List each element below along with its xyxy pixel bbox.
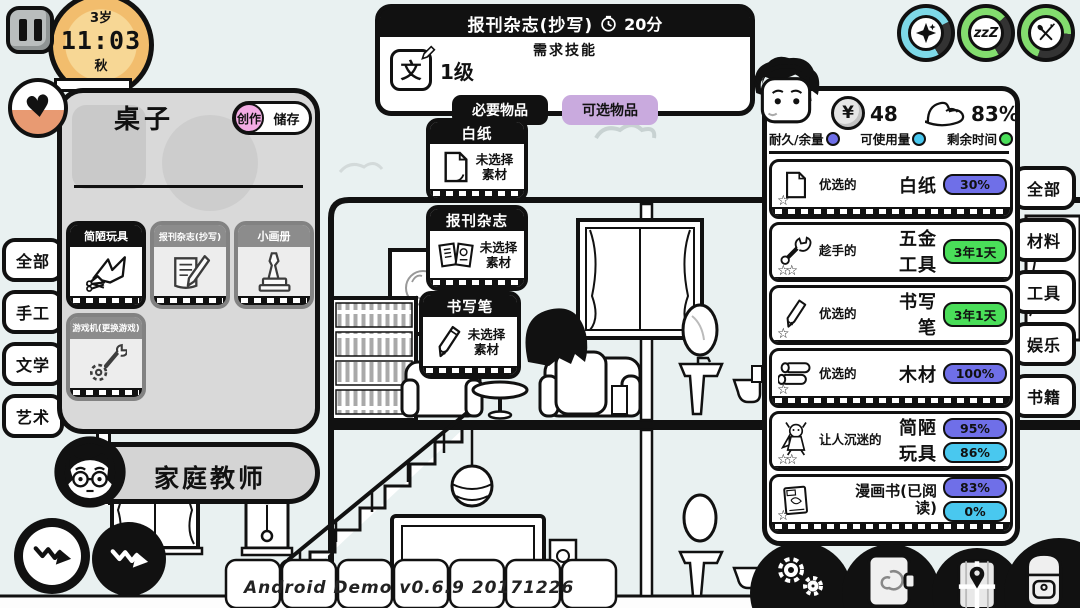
tab-label: 艺术: [16, 404, 50, 428]
item-quality: 优选的: [819, 307, 887, 321]
film-strip: [772, 522, 1010, 531]
statue-icon: [254, 250, 294, 294]
slot-name: 报刊杂志: [430, 209, 524, 231]
item-name: 简陋玩具: [889, 414, 939, 466]
wood-logs-icon: ☆: [775, 351, 817, 396]
usable-dot: [912, 132, 926, 146]
tab-label: 材料: [1027, 228, 1061, 252]
tab-label: 全部: [16, 248, 50, 272]
sparkle-icon: [915, 22, 937, 44]
mood-heart-gauge[interactable]: ♥: [8, 78, 68, 138]
tutor-face-icon: [52, 434, 128, 510]
material-slot-pen[interactable]: 书写笔 未选择 素材: [419, 291, 521, 379]
recipe-name: 报刊杂志(抄写): [154, 225, 226, 247]
item-name: 木材: [889, 361, 939, 387]
backpack-icon: [1011, 544, 1077, 608]
film-strip: [70, 388, 142, 397]
inv-tab-all[interactable]: 全部: [1012, 166, 1076, 210]
age-label: 3岁: [53, 7, 149, 26]
origami-crane-icon: [83, 251, 129, 293]
durability-badge: 100%: [943, 363, 1007, 384]
item-row-tools[interactable]: ☆☆ 趁手的 五金工具 3年1天: [769, 222, 1013, 282]
craft-tab-literature[interactable]: 文学: [2, 342, 64, 386]
item-row-crude-toy[interactable]: ☆☆ 让人沉迷的 简陋玩具 95% 86%: [769, 411, 1013, 471]
item-row-wood[interactable]: ☆ 优选的 木材 100%: [769, 348, 1013, 408]
inv-tab-materials[interactable]: 材料: [1012, 218, 1076, 262]
craft-tab-all[interactable]: 全部: [2, 238, 64, 282]
slot-status: 未选择 素材: [480, 240, 518, 270]
tutor-avatar: [52, 434, 128, 510]
recipe-card-picture-album[interactable]: 小画册: [234, 221, 314, 309]
recipe-card-crude-toy[interactable]: 简陋玩具: [66, 221, 146, 309]
item-quality: 优选的: [819, 367, 887, 381]
film-strip: [772, 466, 1010, 471]
comic-book-icon: ☆: [775, 477, 817, 522]
sleep-gauge[interactable]: zzZ: [957, 4, 1015, 62]
pencil-icon: [420, 45, 436, 61]
skill-char: 文: [401, 55, 422, 85]
tab-label: 全部: [1027, 176, 1061, 200]
item-quality: 趁手的: [819, 244, 887, 258]
film-strip: [70, 296, 142, 305]
skill-requirement: 文 1级: [390, 49, 474, 91]
recipe-card-game-console[interactable]: 游戏机(更换游戏): [66, 313, 146, 401]
slot-status: 未选择 素材: [468, 327, 506, 357]
wrench-icon: ☆☆: [775, 225, 817, 277]
journal-icon: [863, 552, 919, 608]
heart-icon: ♥: [23, 91, 54, 124]
map-pin-icon: [952, 554, 1002, 608]
tutor-label: 家庭教师: [154, 459, 266, 495]
craft-duration: 20分: [624, 11, 662, 35]
hygiene-gauge[interactable]: [897, 4, 955, 62]
recipe-name: 游戏机(更换游戏): [70, 317, 142, 339]
film-strip: [772, 340, 1010, 345]
film-strip: [772, 396, 1010, 405]
inv-tab-books[interactable]: 书籍: [1012, 374, 1076, 418]
recipe-name: 简陋玩具: [70, 225, 142, 247]
currency-symbol: ¥: [842, 103, 854, 123]
film-strip: [772, 207, 1010, 216]
toy-figure-icon: ☆☆: [775, 414, 817, 466]
stat-trend-button-1[interactable]: [14, 518, 90, 594]
tab-label: 手工: [16, 300, 50, 324]
film-strip: [238, 296, 310, 305]
boy-face-icon: [750, 54, 822, 128]
pen-icon: [435, 324, 463, 360]
durability-dot: [826, 132, 840, 146]
item-quality: 让人沉迷的: [819, 433, 887, 447]
material-slot-paper[interactable]: 白纸 未选择 素材: [426, 118, 528, 202]
durability-badge: 95%: [943, 418, 1007, 439]
item-quality: 优选的: [819, 178, 887, 192]
slot-status: 未选择 素材: [476, 152, 514, 182]
utensils-icon: [1036, 23, 1056, 43]
legend-usable: 可使用量: [860, 129, 926, 148]
declining-chart-icon: [31, 537, 73, 575]
usable-badge: 86%: [943, 442, 1007, 463]
paper-pencil-icon: [168, 252, 212, 292]
craft-tab-handicraft[interactable]: 手工: [2, 290, 64, 334]
item-row-comic-book[interactable]: ☆ 漫画书(已阅读) 83% 0%: [769, 474, 1013, 534]
recipe-title: 报刊杂志(抄写): [468, 11, 594, 36]
slot-name: 书写笔: [423, 295, 517, 317]
inv-tab-entertainment[interactable]: 娱乐: [1012, 322, 1076, 366]
time-badge: 3年1天: [943, 302, 1007, 327]
film-strip: [430, 189, 524, 198]
pause-button[interactable]: [6, 6, 54, 54]
tab-optional-items[interactable]: 可选物品: [562, 95, 658, 125]
sleep-icon: zzZ: [974, 26, 999, 41]
legend-time: 剩余时间: [947, 129, 1013, 148]
material-slot-magazine[interactable]: 报刊杂志 未选择 素材: [426, 205, 528, 291]
legend-durability: 耐久/余量: [769, 129, 840, 148]
recipe-detail-panel: 报刊杂志(抄写) 20分 需求技能 文 1级 必要物品 可选物品: [375, 4, 755, 116]
game-screen: 3岁 11:03 秋 ♥ zzZ: [0, 0, 1080, 608]
item-name: 漫画书(已阅读): [837, 483, 939, 516]
item-name: 五金工具: [889, 225, 939, 277]
version-text: Android Demo v0.6.9 20171226: [244, 578, 574, 598]
backpack-button[interactable]: [1004, 538, 1080, 608]
craft-station-panel: 桌子 创作 储存 简陋玩具 报刊杂志(抄写): [57, 88, 320, 434]
strength-value: 83%: [971, 102, 1019, 126]
recipe-card-magazine-copy[interactable]: 报刊杂志(抄写): [150, 221, 230, 309]
recipe-name: 小画册: [238, 225, 310, 247]
inventory-legend: 耐久/余量 可使用量 剩余时间: [769, 129, 1013, 148]
time-dot: [999, 132, 1013, 146]
storage-mode-button[interactable]: 储存: [264, 109, 309, 128]
tab-label: 娱乐: [1027, 332, 1061, 356]
tab-label: 工具: [1027, 280, 1061, 304]
paper-icon: ☆: [775, 162, 817, 207]
usable-badge: 0%: [943, 501, 1007, 522]
item-name: 白纸: [889, 172, 939, 198]
wrench-gear-icon: [85, 343, 127, 385]
slot-name: 白纸: [430, 122, 524, 144]
divider: [74, 185, 303, 188]
craft-machine-button[interactable]: [750, 542, 852, 608]
money-value: 48: [870, 102, 898, 126]
film-strip: [423, 366, 517, 375]
mode-toggle: 创作 储存: [232, 101, 312, 135]
durability-badge: 83%: [943, 477, 1007, 498]
craft-tab-art[interactable]: 艺术: [2, 394, 64, 438]
money-coin-icon: ¥: [831, 96, 865, 130]
item-row-pen[interactable]: ☆ 优选的 书写笔 3年1天: [769, 285, 1013, 345]
pause-icon: [34, 19, 42, 41]
stat-trend-button-2[interactable]: [92, 522, 166, 596]
inv-tab-tools[interactable]: 工具: [1012, 270, 1076, 314]
tab-label: 文学: [16, 352, 50, 376]
player-avatar: [750, 54, 822, 128]
pause-icon: [19, 19, 27, 41]
magazine-icon: [437, 238, 475, 272]
item-row-paper[interactable]: ☆ 优选的 白纸 30%: [769, 159, 1013, 219]
time-badge: 3年1天: [943, 239, 1007, 264]
time-label: 11:03: [53, 26, 149, 55]
literature-skill-icon: 文: [390, 49, 432, 91]
hunger-gauge[interactable]: [1017, 4, 1075, 62]
film-strip: [772, 277, 1010, 282]
skill-level: 1级: [440, 56, 474, 85]
film-strip: [154, 296, 226, 305]
tab-label: 书籍: [1027, 384, 1061, 408]
muscle-icon: [925, 98, 969, 128]
item-name: 书写笔: [889, 288, 939, 340]
divider: [769, 151, 1009, 154]
paper-icon: [441, 149, 471, 185]
durability-badge: 30%: [943, 174, 1007, 195]
season-label: 秋: [53, 55, 149, 74]
gears-icon: [763, 550, 839, 606]
film-strip: [430, 278, 524, 287]
recipe-detail-header: 报刊杂志(抄写) 20分: [380, 9, 750, 37]
station-title: 桌子: [114, 99, 174, 136]
pen-icon: ☆: [775, 288, 817, 340]
declining-chart-icon: [108, 540, 150, 578]
timer-icon: [600, 15, 617, 32]
create-mode-button: 创作: [234, 103, 264, 133]
inventory-panel: ¥ 48 83% 耐久/余量 可使用量 剩余时间: [762, 86, 1020, 546]
